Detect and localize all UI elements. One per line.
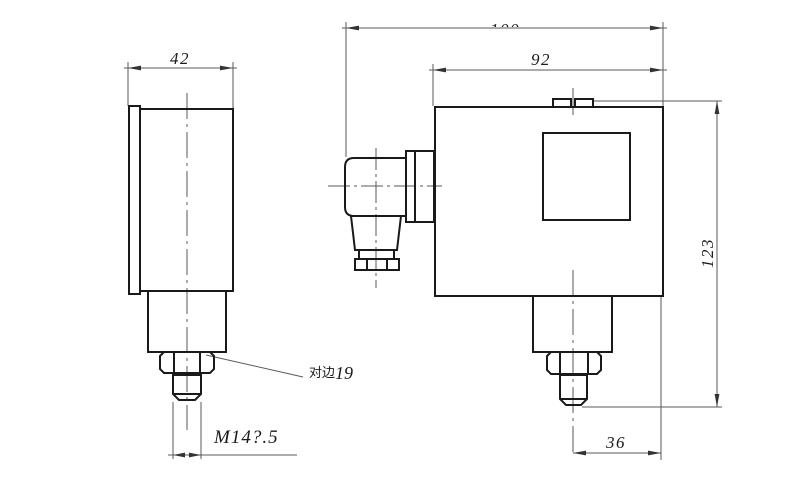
dim-label-overall-width: 100 bbox=[480, 20, 530, 27]
front-body bbox=[435, 107, 663, 296]
dim-label-port-offset: 36 bbox=[596, 433, 636, 453]
front-view bbox=[345, 99, 663, 405]
dim-label-thread-spec: M14?.5 bbox=[214, 427, 279, 449]
dimension-arrowheads bbox=[128, 26, 719, 458]
leader-line-flats bbox=[206, 355, 303, 377]
arrow bbox=[650, 68, 663, 73]
arrow bbox=[189, 453, 201, 458]
arrow bbox=[346, 26, 359, 31]
across-flats-value: 19 bbox=[335, 363, 353, 383]
arrow bbox=[715, 101, 720, 114]
top-tab-left bbox=[553, 99, 571, 107]
arrow bbox=[715, 394, 720, 407]
side-mounting-plate bbox=[129, 106, 140, 294]
cable-gland-nut bbox=[355, 259, 399, 270]
dim-label-overall-width-clipped: 100 bbox=[480, 20, 530, 27]
arrow bbox=[173, 453, 185, 458]
top-tab-right bbox=[575, 99, 593, 107]
dimension-and-extension-lines bbox=[124, 22, 722, 460]
arrow bbox=[128, 66, 141, 71]
across-flats-text: 对边 bbox=[309, 366, 335, 381]
pressure-switch-drawing bbox=[0, 0, 800, 500]
dim-label-body-width: 92 bbox=[521, 50, 561, 70]
setting-window bbox=[543, 133, 630, 220]
dim-label-overall-height: 123 bbox=[698, 232, 718, 274]
arrow bbox=[220, 66, 233, 71]
leader-label-across-flats: 对边19 bbox=[309, 362, 353, 384]
arrow bbox=[433, 68, 446, 73]
side-view bbox=[129, 106, 233, 400]
arrow bbox=[648, 451, 661, 456]
arrow bbox=[650, 26, 663, 31]
technical-drawing-canvas: 42 100 92 123 36 M14?.5 对边19 bbox=[0, 0, 800, 500]
arrow bbox=[573, 451, 586, 456]
front-hex-nut bbox=[547, 352, 601, 374]
dim-label-side-width: 42 bbox=[160, 49, 200, 69]
